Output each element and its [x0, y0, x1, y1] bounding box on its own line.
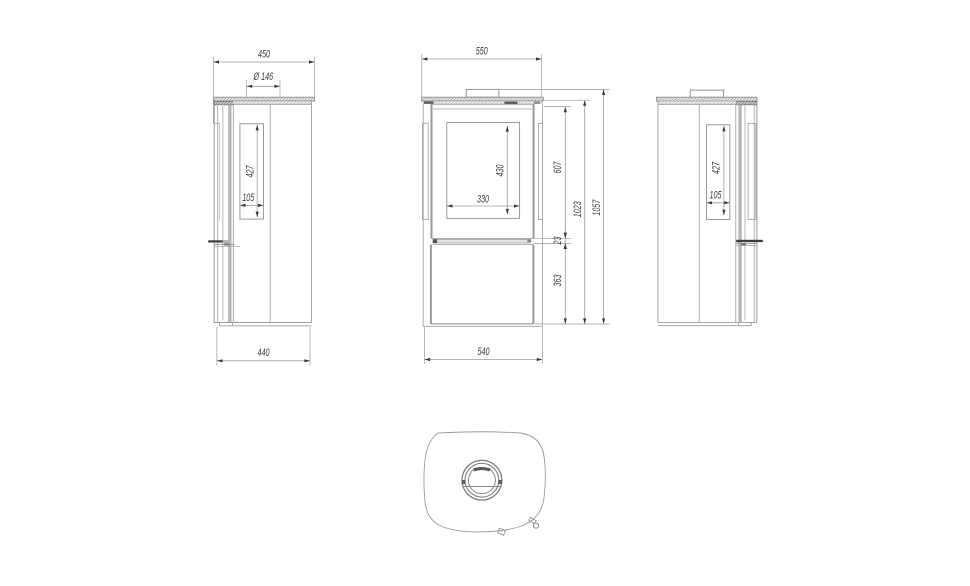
svg-text:363: 363	[551, 274, 564, 287]
svg-text:105: 105	[242, 191, 255, 204]
svg-text:Ø 146: Ø 146	[253, 70, 274, 83]
svg-text:540: 540	[477, 345, 490, 358]
svg-text:1023: 1023	[571, 201, 584, 217]
svg-text:440: 440	[257, 347, 270, 360]
svg-text:105: 105	[710, 189, 723, 202]
svg-text:427: 427	[244, 165, 257, 178]
svg-text:550: 550	[476, 45, 489, 58]
svg-text:430: 430	[494, 164, 507, 177]
svg-text:607: 607	[552, 161, 565, 174]
svg-text:23: 23	[552, 236, 565, 245]
svg-text:330: 330	[477, 193, 490, 206]
svg-text:450: 450	[258, 48, 271, 61]
svg-text:1057: 1057	[590, 199, 603, 215]
svg-text:427: 427	[710, 161, 723, 174]
